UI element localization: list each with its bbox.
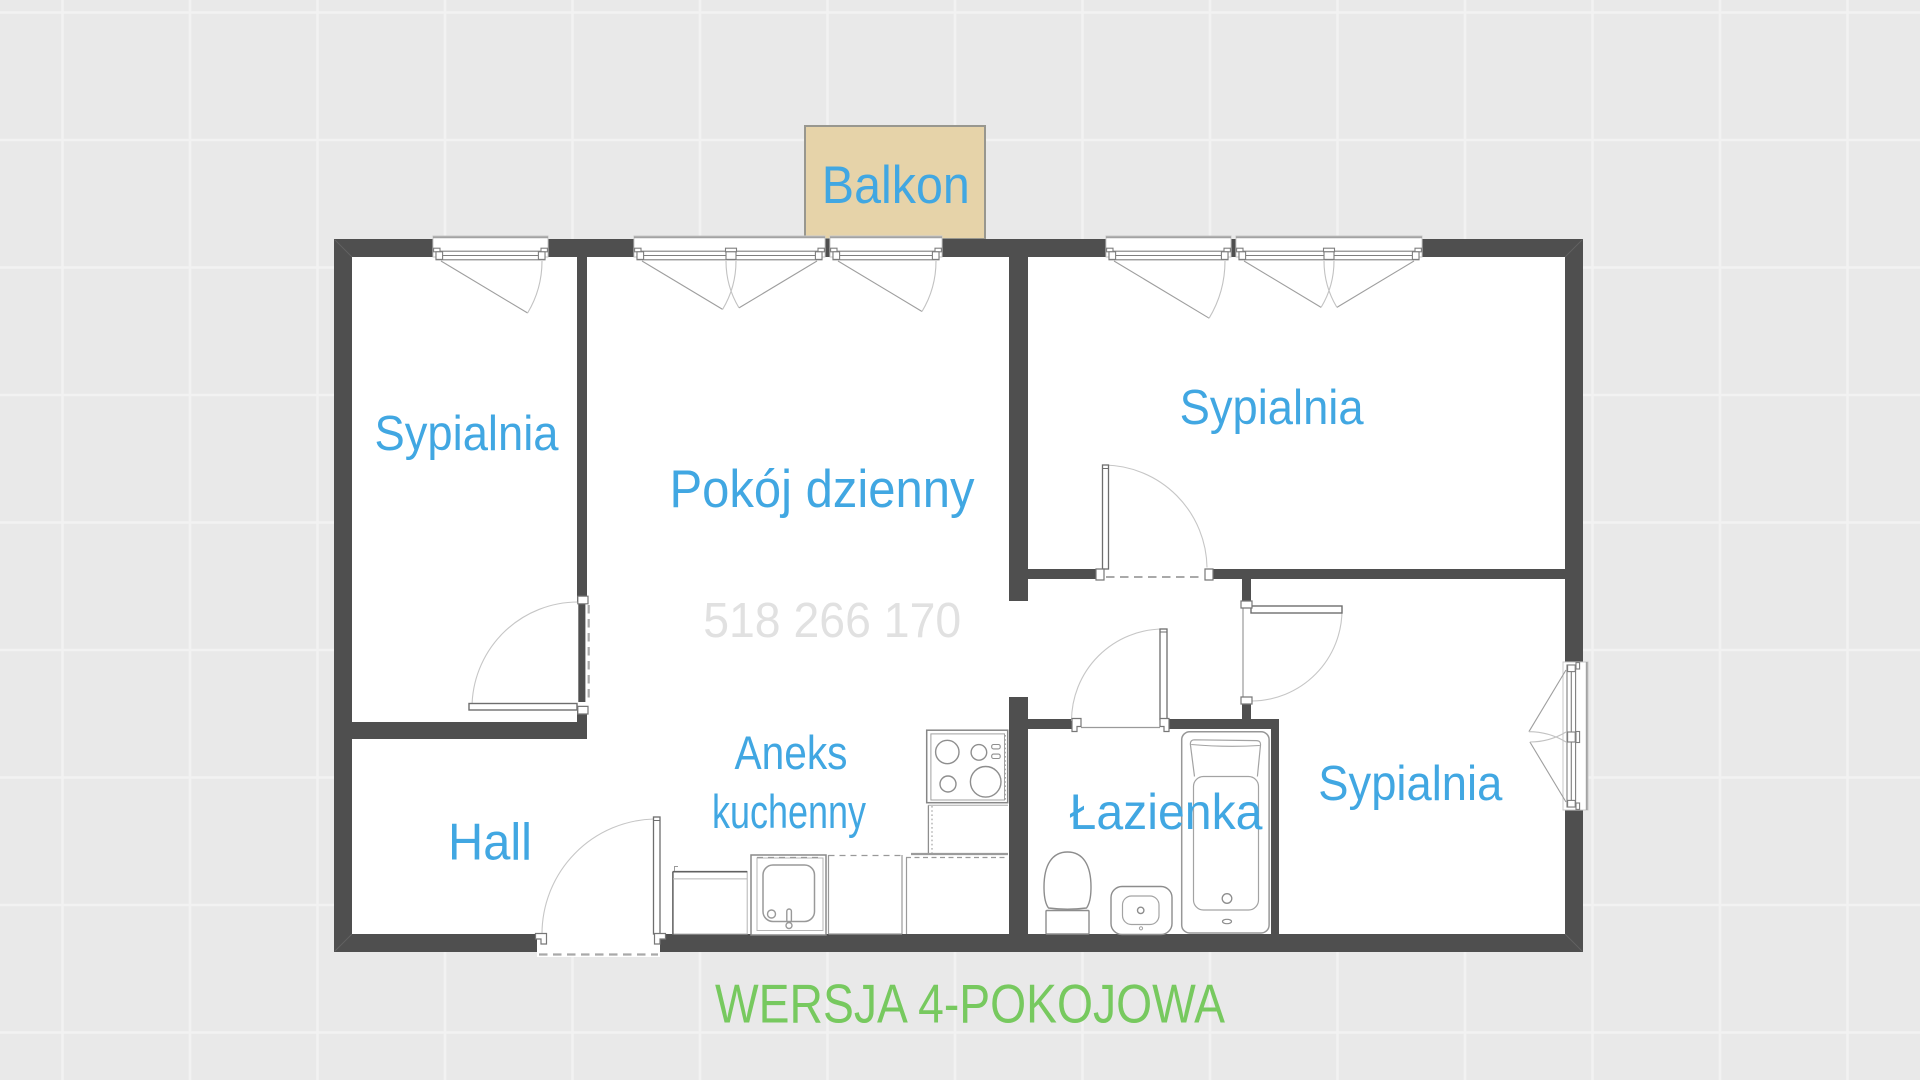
svg-text:Hall: Hall: [448, 814, 532, 872]
svg-text:Pokój dzienny: Pokój dzienny: [670, 460, 975, 519]
svg-text:kuchenny: kuchenny: [712, 785, 866, 838]
svg-text:Balkon: Balkon: [822, 156, 970, 215]
svg-text:WERSJA 4-POKOJOWA: WERSJA 4-POKOJOWA: [715, 973, 1225, 1035]
svg-text:Łazienka: Łazienka: [1070, 784, 1263, 840]
svg-text:Sypialnia: Sypialnia: [1318, 757, 1503, 811]
svg-text:518 266 170: 518 266 170: [703, 594, 961, 648]
svg-text:Sypialnia: Sypialnia: [375, 407, 560, 461]
svg-text:Aneks: Aneks: [735, 726, 848, 779]
svg-text:Sypialnia: Sypialnia: [1180, 381, 1365, 435]
